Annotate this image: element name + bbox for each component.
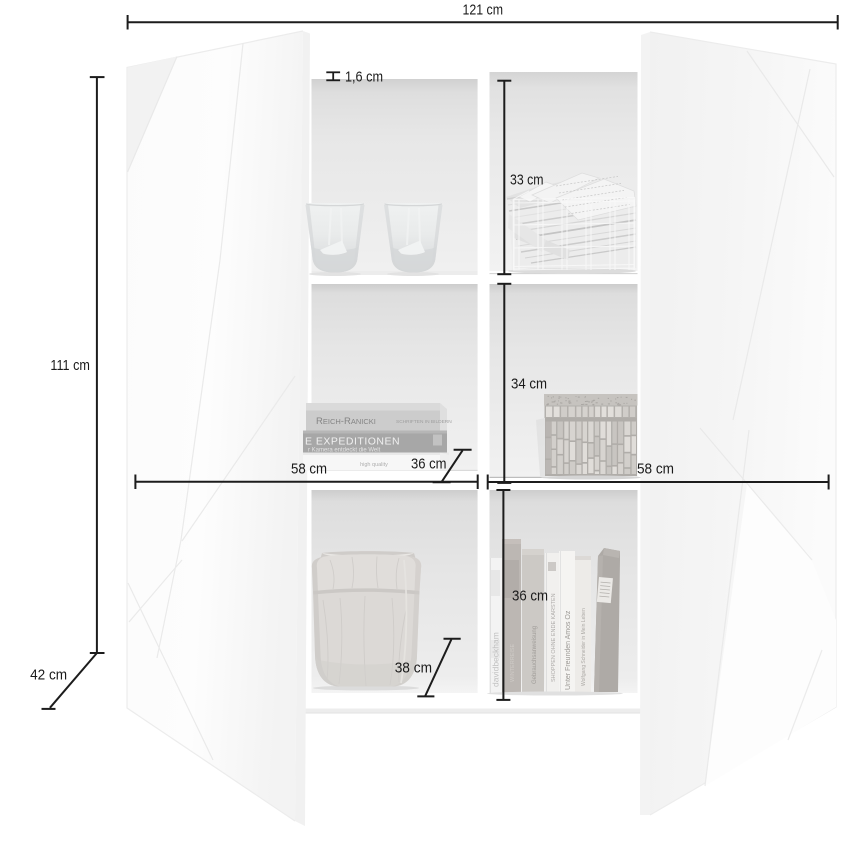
svg-text:58 cm: 58 cm (637, 461, 674, 478)
svg-text:58 cm: 58 cm (291, 461, 327, 478)
svg-text:SCHRIFTEN IN BILDERN: SCHRIFTEN IN BILDERN (396, 419, 452, 425)
svg-text:34 cm: 34 cm (511, 376, 547, 393)
svg-text:E EXPEDITIONEN: E EXPEDITIONEN (305, 436, 400, 448)
svg-text:SHOPPEN OHNE ENDE KARSTEN: SHOPPEN OHNE ENDE KARSTEN (551, 593, 557, 682)
svg-text:Unter Freunden Amos Oz: Unter Freunden Amos Oz (565, 610, 572, 690)
svg-text:36 cm: 36 cm (411, 455, 447, 472)
svg-text:Wolfgang Schneider in Mein Leb: Wolfgang Schneider in Mein Leben (581, 608, 587, 686)
svg-text:Gebrauchsanweisung: Gebrauchsanweisung (532, 626, 538, 684)
svg-text:davidbeckham: davidbeckham (491, 632, 501, 687)
svg-text:WINTERREISE: WINTERREISE (510, 643, 516, 682)
svg-text:42 cm: 42 cm (30, 667, 67, 684)
svg-text:high quality: high quality (360, 462, 388, 468)
svg-text:1,6 cm: 1,6 cm (345, 69, 383, 86)
svg-text:36 cm: 36 cm (512, 588, 548, 605)
svg-text:111 cm: 111 cm (50, 357, 90, 374)
svg-text:38 cm: 38 cm (395, 660, 432, 677)
svg-text:121 cm: 121 cm (463, 2, 504, 19)
svg-text:REICH-RANICKI: REICH-RANICKI (316, 416, 376, 427)
svg-text:33 cm: 33 cm (510, 172, 544, 189)
